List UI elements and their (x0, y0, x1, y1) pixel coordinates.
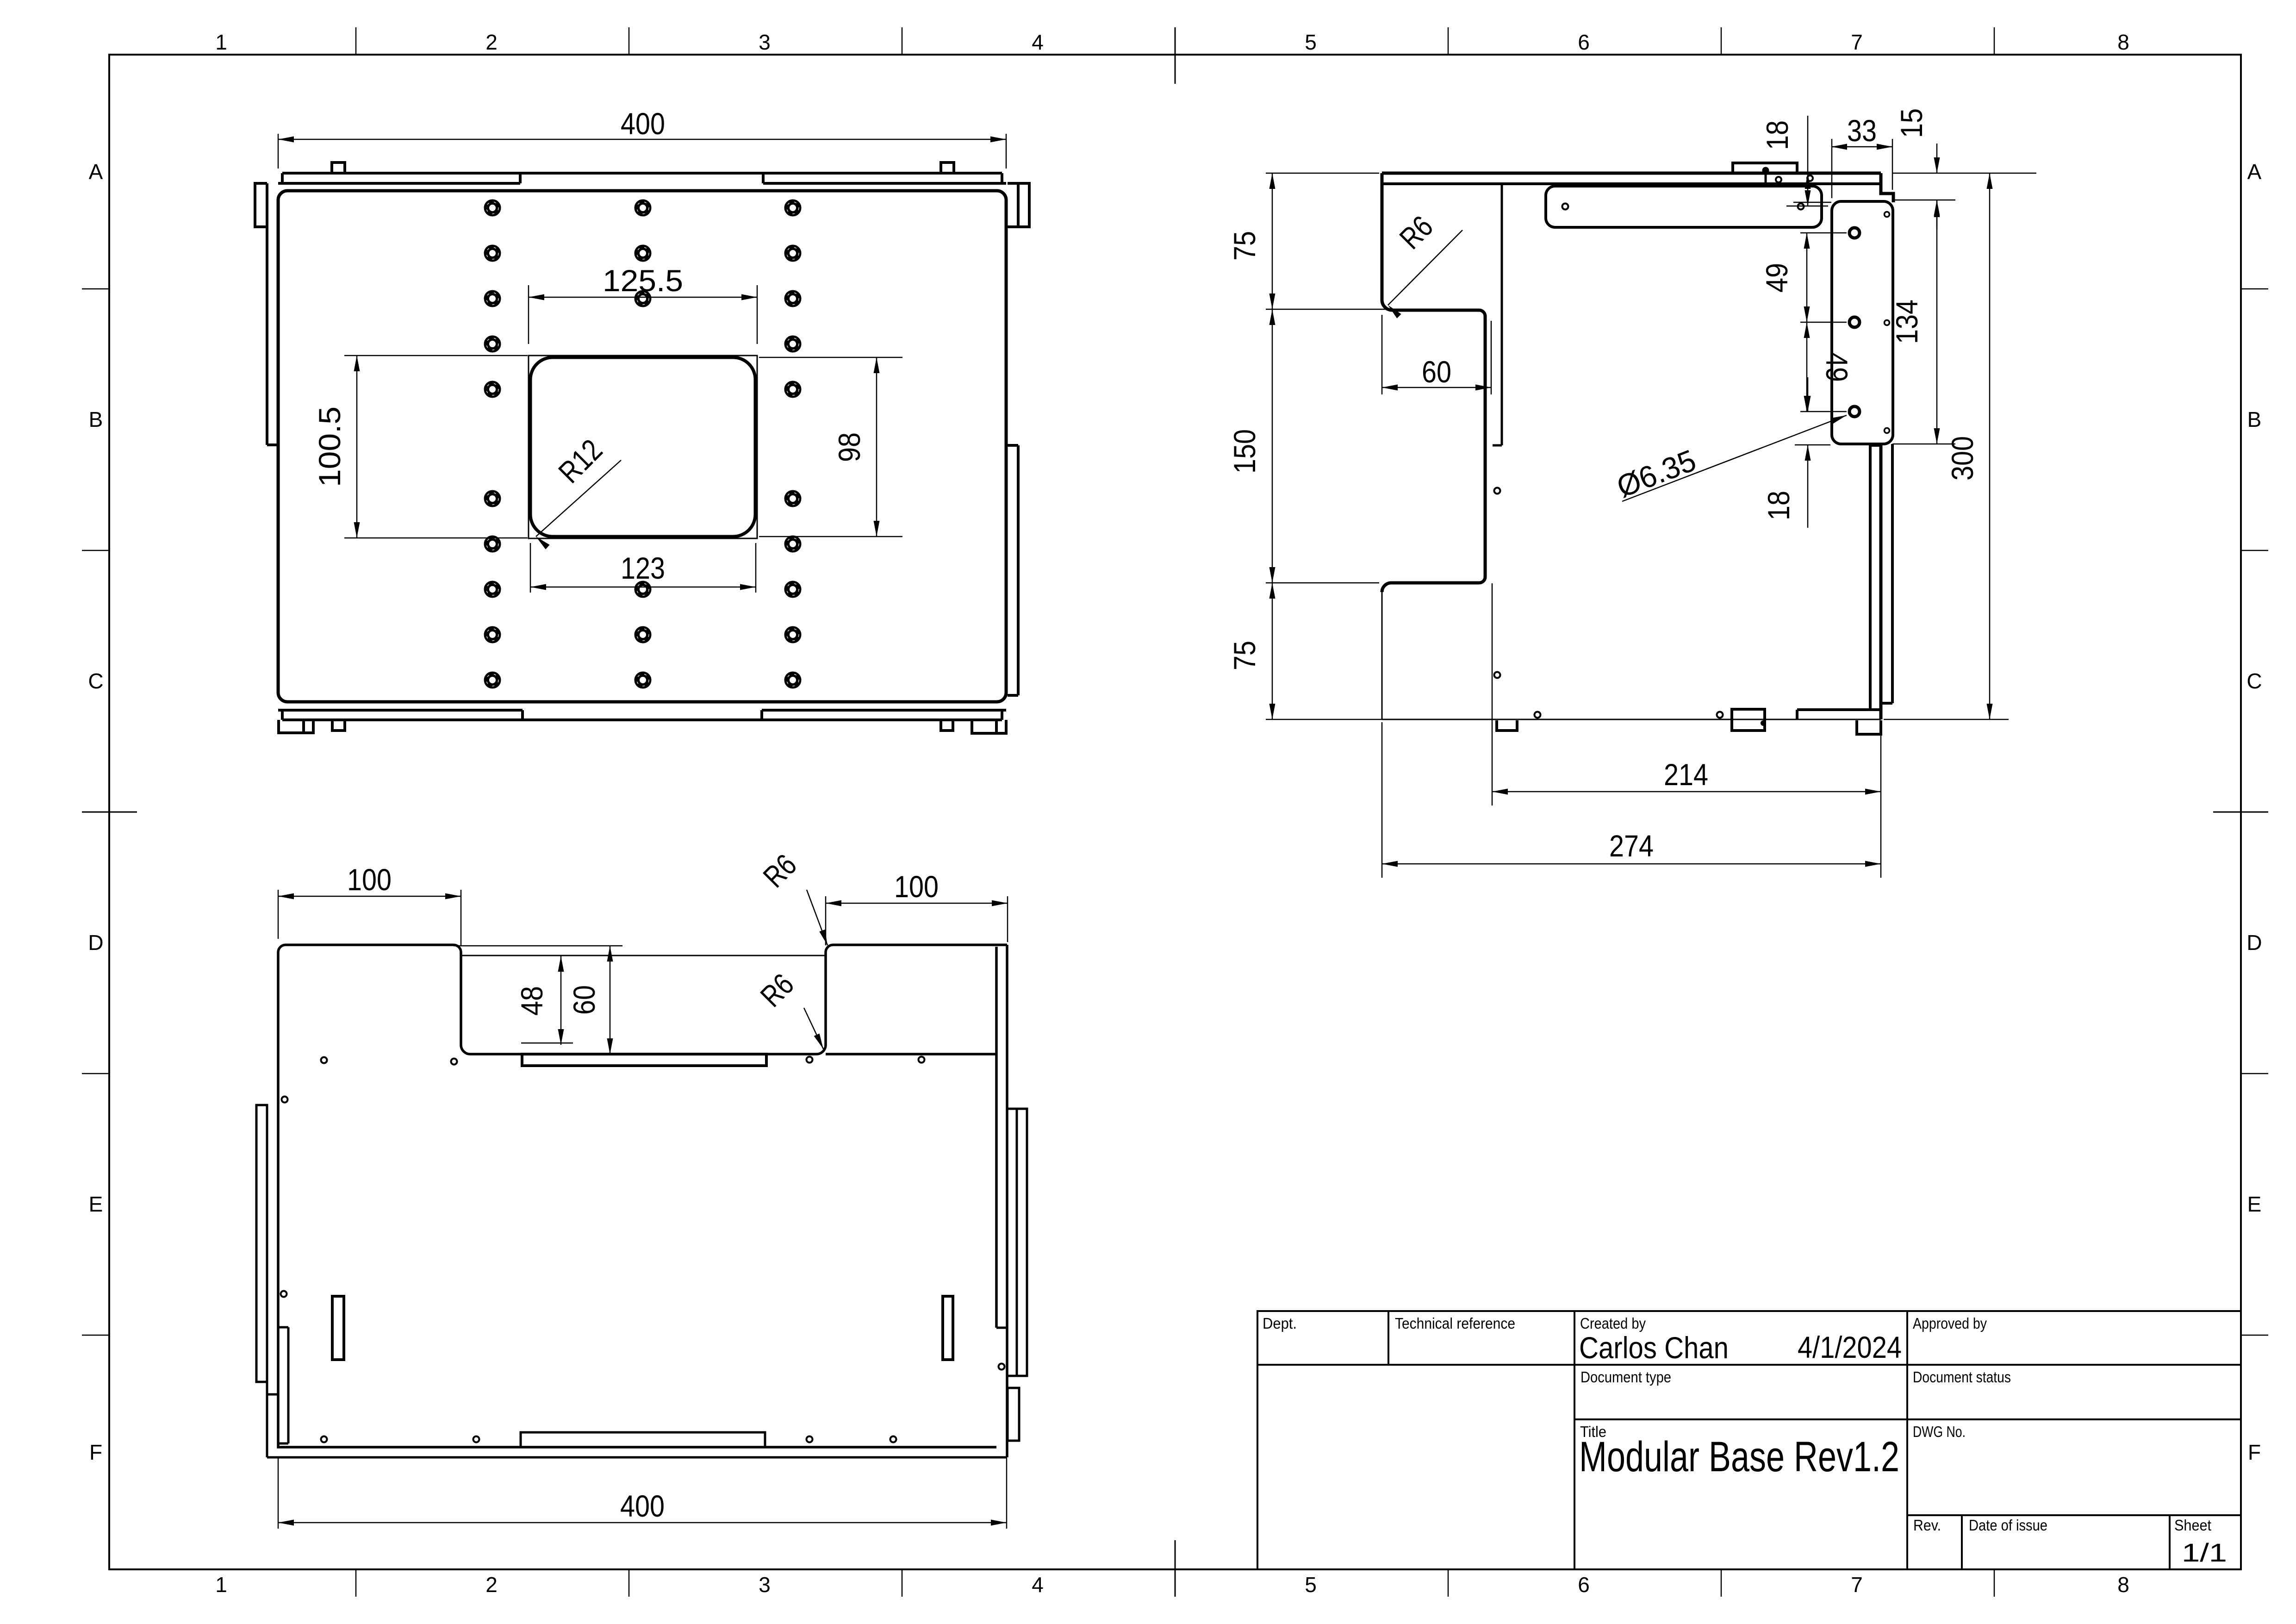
svg-text:A: A (2247, 160, 2262, 184)
svg-text:Modular Base Rev1.2: Modular Base Rev1.2 (1579, 1433, 1899, 1480)
svg-text:18: 18 (1761, 491, 1796, 520)
svg-text:F: F (89, 1440, 102, 1464)
svg-text:214: 214 (1664, 757, 1708, 792)
svg-text:60: 60 (567, 985, 601, 1015)
svg-text:18: 18 (1760, 120, 1794, 150)
svg-text:75: 75 (1227, 231, 1262, 261)
svg-text:400: 400 (620, 1489, 665, 1523)
svg-text:1: 1 (215, 1573, 227, 1597)
svg-text:100.5: 100.5 (312, 406, 347, 487)
svg-text:98: 98 (832, 432, 866, 462)
svg-text:Document status: Document status (1913, 1368, 2011, 1386)
svg-text:7: 7 (1851, 30, 1863, 54)
svg-text:400: 400 (621, 106, 665, 141)
svg-text:D: D (2246, 931, 2262, 955)
svg-text:5: 5 (1305, 1573, 1317, 1597)
svg-text:Approved by: Approved by (1913, 1315, 1987, 1332)
svg-text:1: 1 (215, 30, 227, 54)
svg-text:60: 60 (1422, 355, 1451, 389)
svg-text:E: E (89, 1192, 103, 1216)
svg-text:2: 2 (485, 30, 498, 54)
svg-text:B: B (89, 407, 103, 431)
svg-text:134: 134 (1890, 300, 1924, 344)
svg-text:A: A (89, 160, 103, 184)
svg-text:D: D (88, 931, 103, 955)
svg-text:B: B (2247, 407, 2262, 431)
svg-text:C: C (88, 669, 103, 693)
svg-text:1/1: 1/1 (2182, 1538, 2227, 1567)
svg-text:123: 123 (621, 551, 665, 585)
svg-text:Document type: Document type (1580, 1368, 1671, 1386)
svg-text:49: 49 (1760, 263, 1794, 293)
svg-text:Sheet: Sheet (2174, 1517, 2211, 1534)
svg-text:8: 8 (2117, 1573, 2129, 1597)
svg-text:DWG No.: DWG No. (1913, 1423, 1966, 1440)
svg-text:C: C (2246, 669, 2262, 693)
svg-text:E: E (2247, 1192, 2262, 1216)
svg-text:5: 5 (1305, 30, 1317, 54)
svg-text:4/1/2024: 4/1/2024 (1798, 1330, 1902, 1364)
svg-text:2: 2 (485, 1573, 498, 1597)
svg-text:Created by: Created by (1580, 1315, 1646, 1332)
svg-text:4: 4 (1032, 30, 1044, 54)
svg-text:Date of issue: Date of issue (1969, 1517, 2047, 1534)
svg-text:48: 48 (515, 986, 549, 1016)
svg-text:100: 100 (347, 862, 392, 897)
svg-text:125.5: 125.5 (603, 263, 683, 298)
svg-text:75: 75 (1227, 641, 1262, 670)
svg-text:7: 7 (1851, 1573, 1863, 1597)
svg-text:4: 4 (1032, 1573, 1044, 1597)
svg-text:6: 6 (1578, 30, 1590, 54)
svg-text:Technical reference: Technical reference (1395, 1315, 1515, 1332)
svg-text:Rev.: Rev. (1913, 1517, 1941, 1534)
svg-text:6: 6 (1578, 1573, 1590, 1597)
svg-text:49: 49 (1820, 352, 1854, 382)
svg-text:274: 274 (1609, 829, 1654, 863)
svg-text:300: 300 (1945, 436, 1979, 481)
svg-text:15: 15 (1894, 108, 1929, 138)
svg-text:33: 33 (1847, 113, 1877, 148)
svg-text:Dept.: Dept. (1263, 1315, 1297, 1332)
svg-text:150: 150 (1227, 429, 1262, 474)
svg-text:3: 3 (759, 1573, 771, 1597)
svg-text:3: 3 (759, 30, 771, 54)
svg-text:100: 100 (894, 869, 939, 904)
svg-text:8: 8 (2117, 30, 2129, 54)
svg-text:Carlos Chan: Carlos Chan (1579, 1330, 1729, 1365)
svg-text:F: F (2248, 1440, 2261, 1464)
